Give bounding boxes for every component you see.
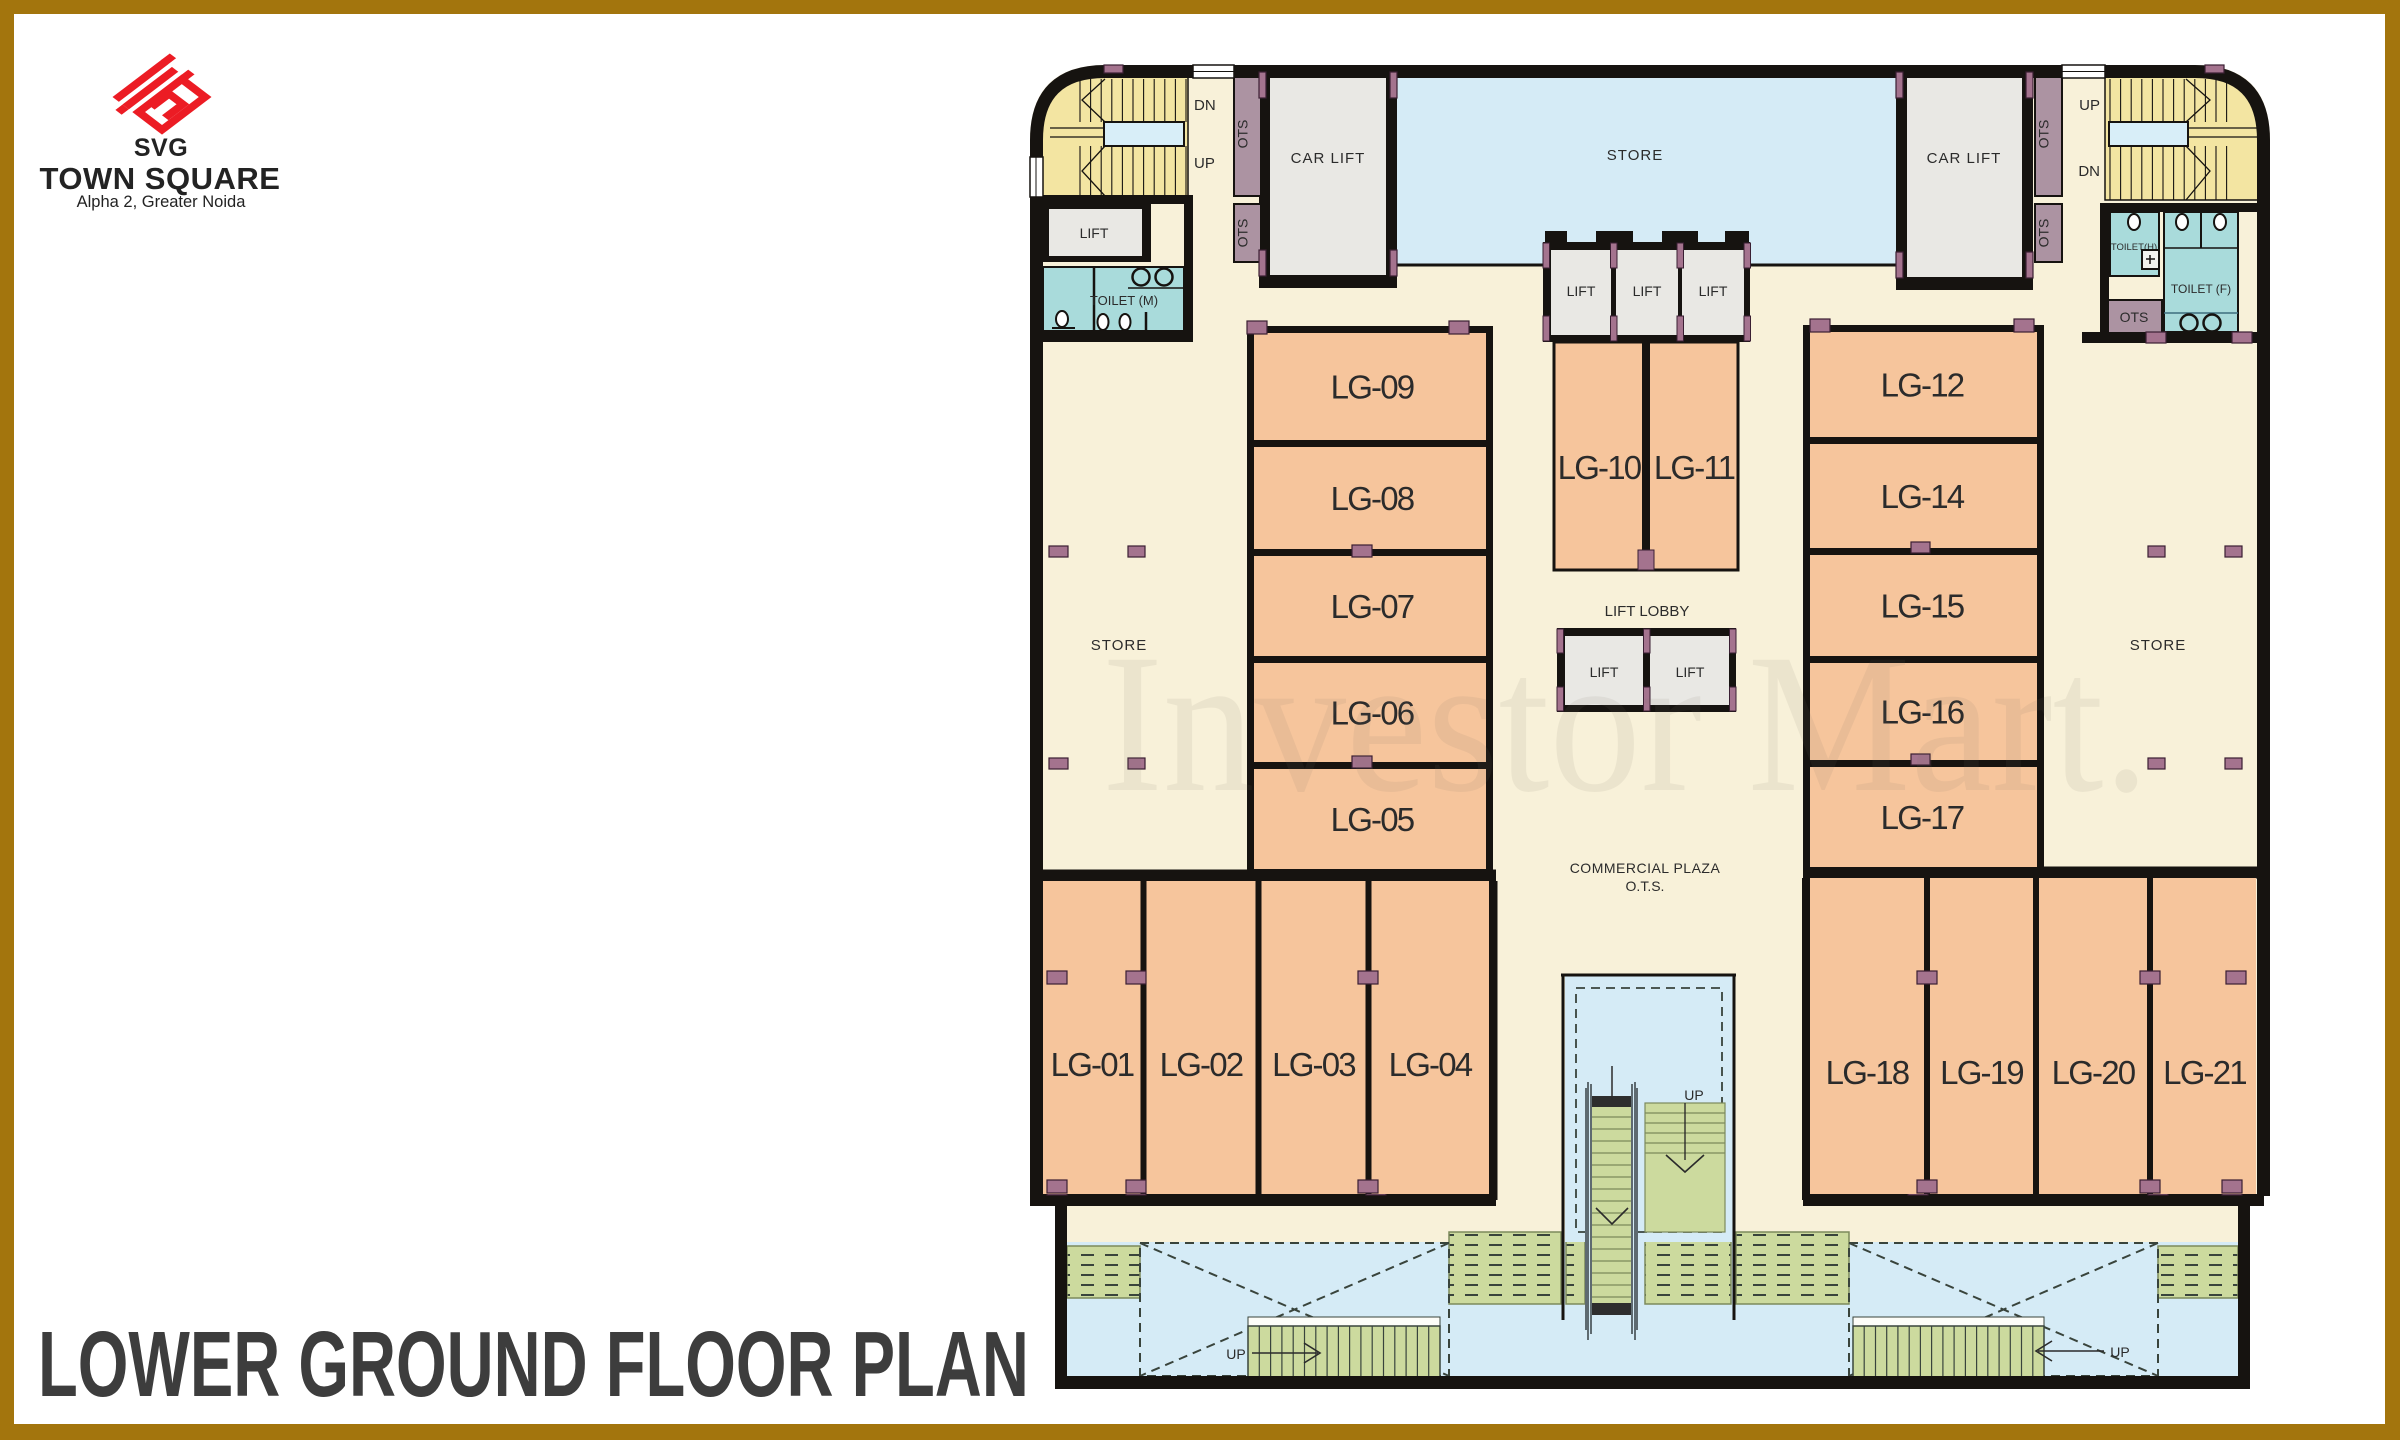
svg-text:LG-18: LG-18 xyxy=(1826,1054,1909,1091)
svg-text:UP: UP xyxy=(1226,1346,1245,1362)
svg-text:UP: UP xyxy=(2110,1344,2129,1360)
svg-text:LIFT: LIFT xyxy=(1567,283,1596,299)
svg-text:LG-11: LG-11 xyxy=(1654,449,1735,486)
svg-text:Investor Mart.: Investor Mart. xyxy=(1102,614,2149,834)
svg-text:LG-09: LG-09 xyxy=(1331,369,1414,406)
svg-text:LIFT: LIFT xyxy=(1080,225,1109,241)
svg-text:LIFT: LIFT xyxy=(1699,283,1728,299)
svg-text:LG-02: LG-02 xyxy=(1160,1046,1243,1083)
svg-text:SVG: SVG xyxy=(134,134,188,162)
svg-text:CAR LIFT: CAR LIFT xyxy=(1291,150,1366,167)
svg-text:LIFT: LIFT xyxy=(1633,283,1662,299)
svg-text:LG-12: LG-12 xyxy=(1881,367,1964,404)
svg-text:STORE: STORE xyxy=(1607,147,1663,164)
svg-text:DN: DN xyxy=(1194,97,1216,114)
svg-text:LG-10: LG-10 xyxy=(1558,449,1642,486)
svg-text:OTS: OTS xyxy=(2036,219,2052,248)
svg-text:LG-04: LG-04 xyxy=(1389,1046,1473,1083)
svg-text:LG-03: LG-03 xyxy=(1272,1046,1355,1083)
svg-text:LG-14: LG-14 xyxy=(1881,478,1965,515)
svg-text:UP: UP xyxy=(2079,97,2100,114)
svg-text:OTS: OTS xyxy=(2036,120,2052,149)
svg-text:UP: UP xyxy=(1684,1087,1703,1103)
svg-text:LG-08: LG-08 xyxy=(1331,480,1414,517)
svg-text:LG-19: LG-19 xyxy=(1940,1054,2023,1091)
svg-text:OTS: OTS xyxy=(1235,120,1251,149)
svg-text:DN: DN xyxy=(2078,163,2100,180)
svg-text:Alpha 2, Greater Noida: Alpha 2, Greater Noida xyxy=(77,193,247,211)
svg-text:TOILET (M): TOILET (M) xyxy=(1090,293,1158,308)
svg-text:LG-21: LG-21 xyxy=(2163,1054,2246,1091)
svg-text:TOWN SQUARE: TOWN SQUARE xyxy=(40,161,281,196)
svg-text:O.T.S.: O.T.S. xyxy=(1626,878,1665,894)
svg-text:CAR LIFT: CAR LIFT xyxy=(1927,150,2002,167)
svg-text:LG-20: LG-20 xyxy=(2052,1054,2136,1091)
svg-text:OTS: OTS xyxy=(2120,309,2149,325)
svg-text:TOILET (F): TOILET (F) xyxy=(2171,282,2231,296)
svg-text:LG-01: LG-01 xyxy=(1051,1046,1134,1083)
svg-text:COMMERCIAL PLAZA: COMMERCIAL PLAZA xyxy=(1570,860,1721,876)
svg-text:UP: UP xyxy=(1194,155,1215,172)
svg-text:OTS: OTS xyxy=(1235,219,1251,248)
svg-text:LOWER GROUND FLOOR PLAN: LOWER GROUND FLOOR PLAN xyxy=(38,1313,1029,1417)
